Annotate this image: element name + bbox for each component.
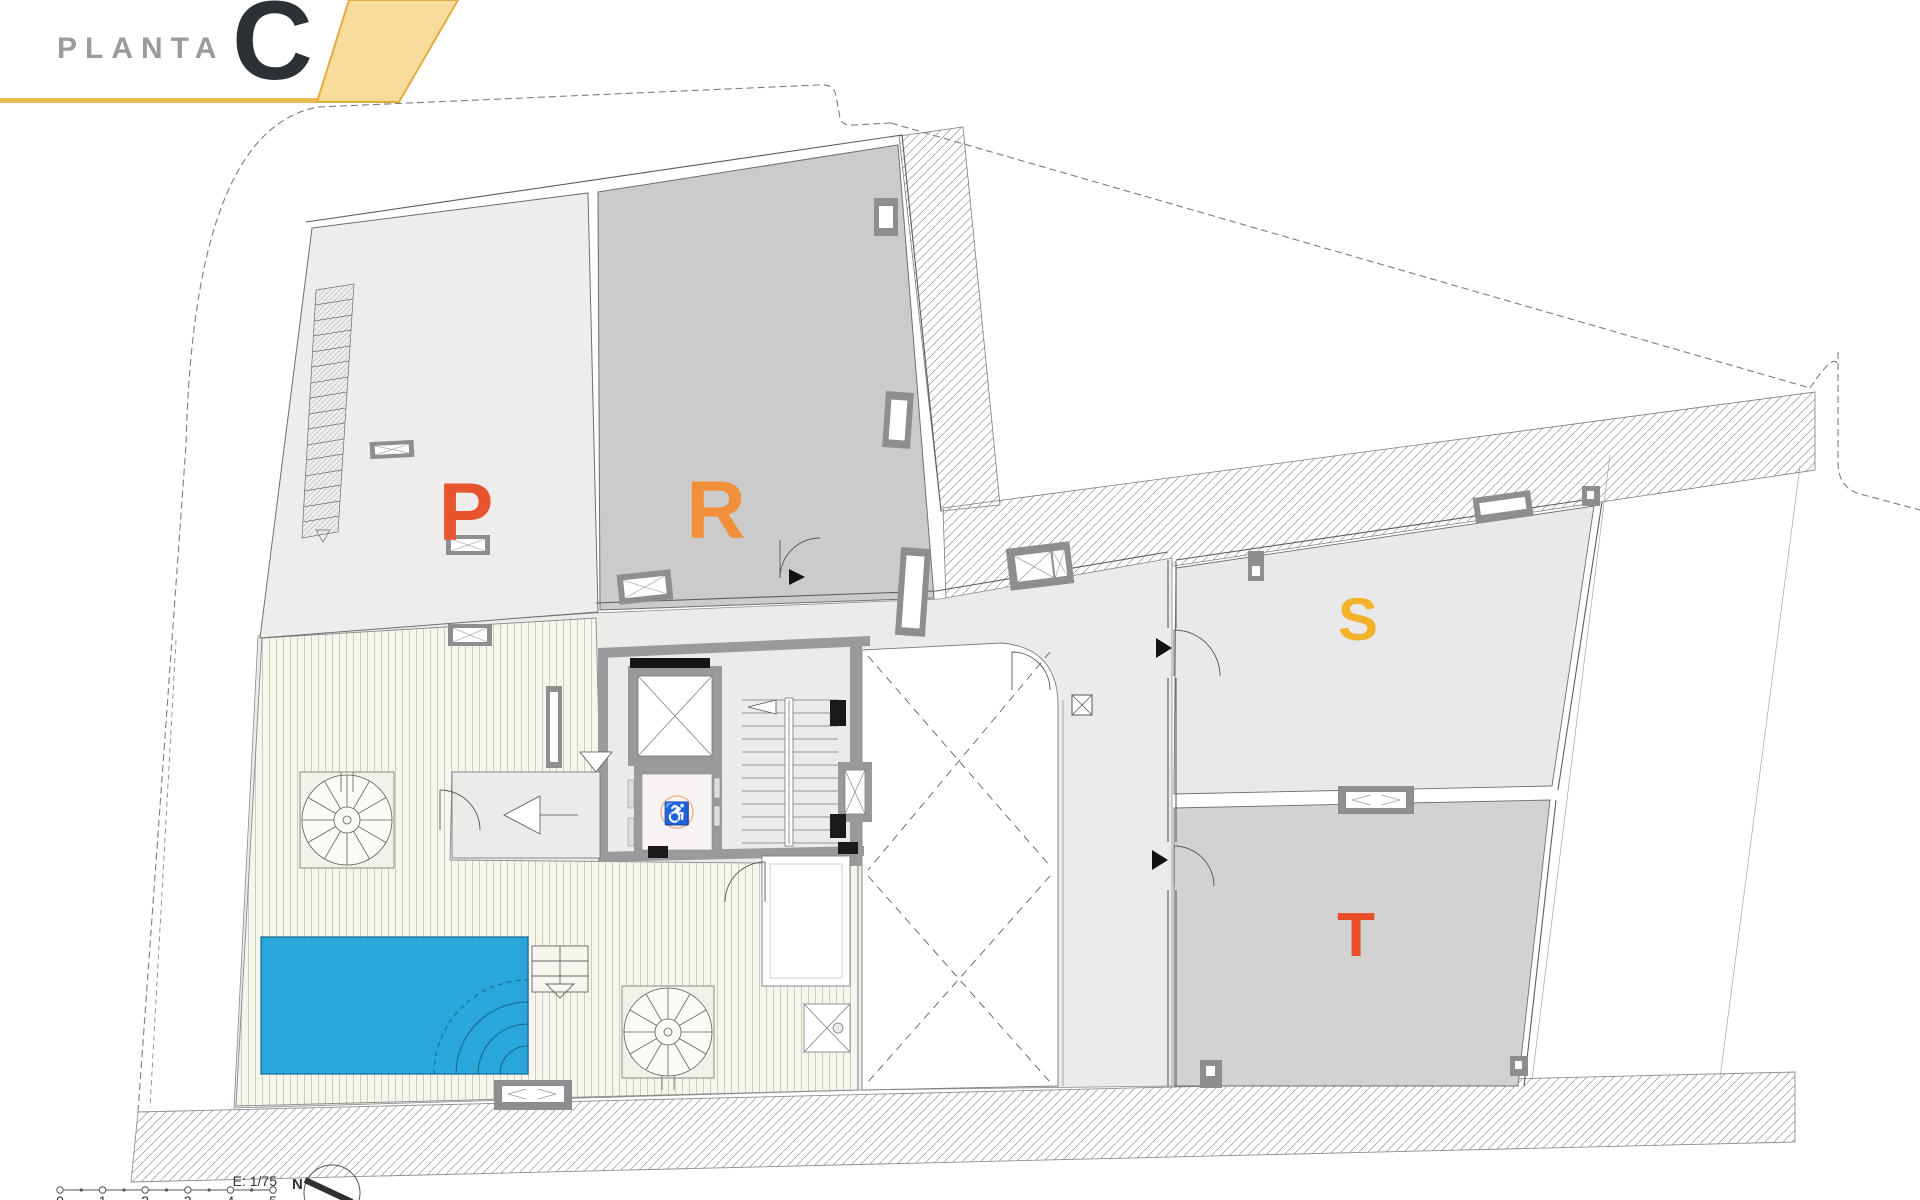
room-label-t: T	[1337, 901, 1375, 970]
room-label-r: R	[686, 465, 745, 556]
swimming-pool	[261, 937, 528, 1074]
scale-tick-3: 3	[184, 1193, 192, 1200]
header: PLANTA C	[0, 0, 458, 103]
deck-planter	[762, 856, 850, 986]
room-label-s: S	[1338, 586, 1378, 653]
party-wall-hatch	[899, 127, 1815, 600]
scale-label: E: 1/75	[233, 1173, 278, 1189]
small-elevator-shaft	[838, 762, 872, 822]
pool-steps	[532, 946, 588, 998]
floor-plan-sheet: PLANTA C	[0, 0, 1920, 1200]
floor-letter: C	[232, 0, 313, 103]
void-patio	[862, 643, 1092, 1090]
north-label: N	[292, 1176, 303, 1193]
scale-tick-4: 4	[227, 1193, 235, 1200]
scale-tick-2: 2	[141, 1193, 149, 1200]
floor-banner	[317, 0, 458, 102]
spiral-stair-1	[300, 772, 394, 868]
scale-tick-0: 0	[56, 1193, 64, 1200]
wheelchair-icon: ♿	[663, 801, 690, 826]
scale-tick-1: 1	[99, 1193, 107, 1200]
floor-plan-drawing: PLANTA C	[0, 0, 1920, 1200]
sheet-title: PLANTA	[57, 32, 224, 65]
scale-tick-5: 5	[269, 1193, 277, 1200]
accessible-lift: ♿	[628, 766, 722, 858]
elevator-shaft	[628, 658, 722, 766]
shower-tray	[804, 1004, 850, 1052]
spiral-stair-2	[622, 986, 714, 1090]
room-label-p: P	[439, 467, 494, 558]
